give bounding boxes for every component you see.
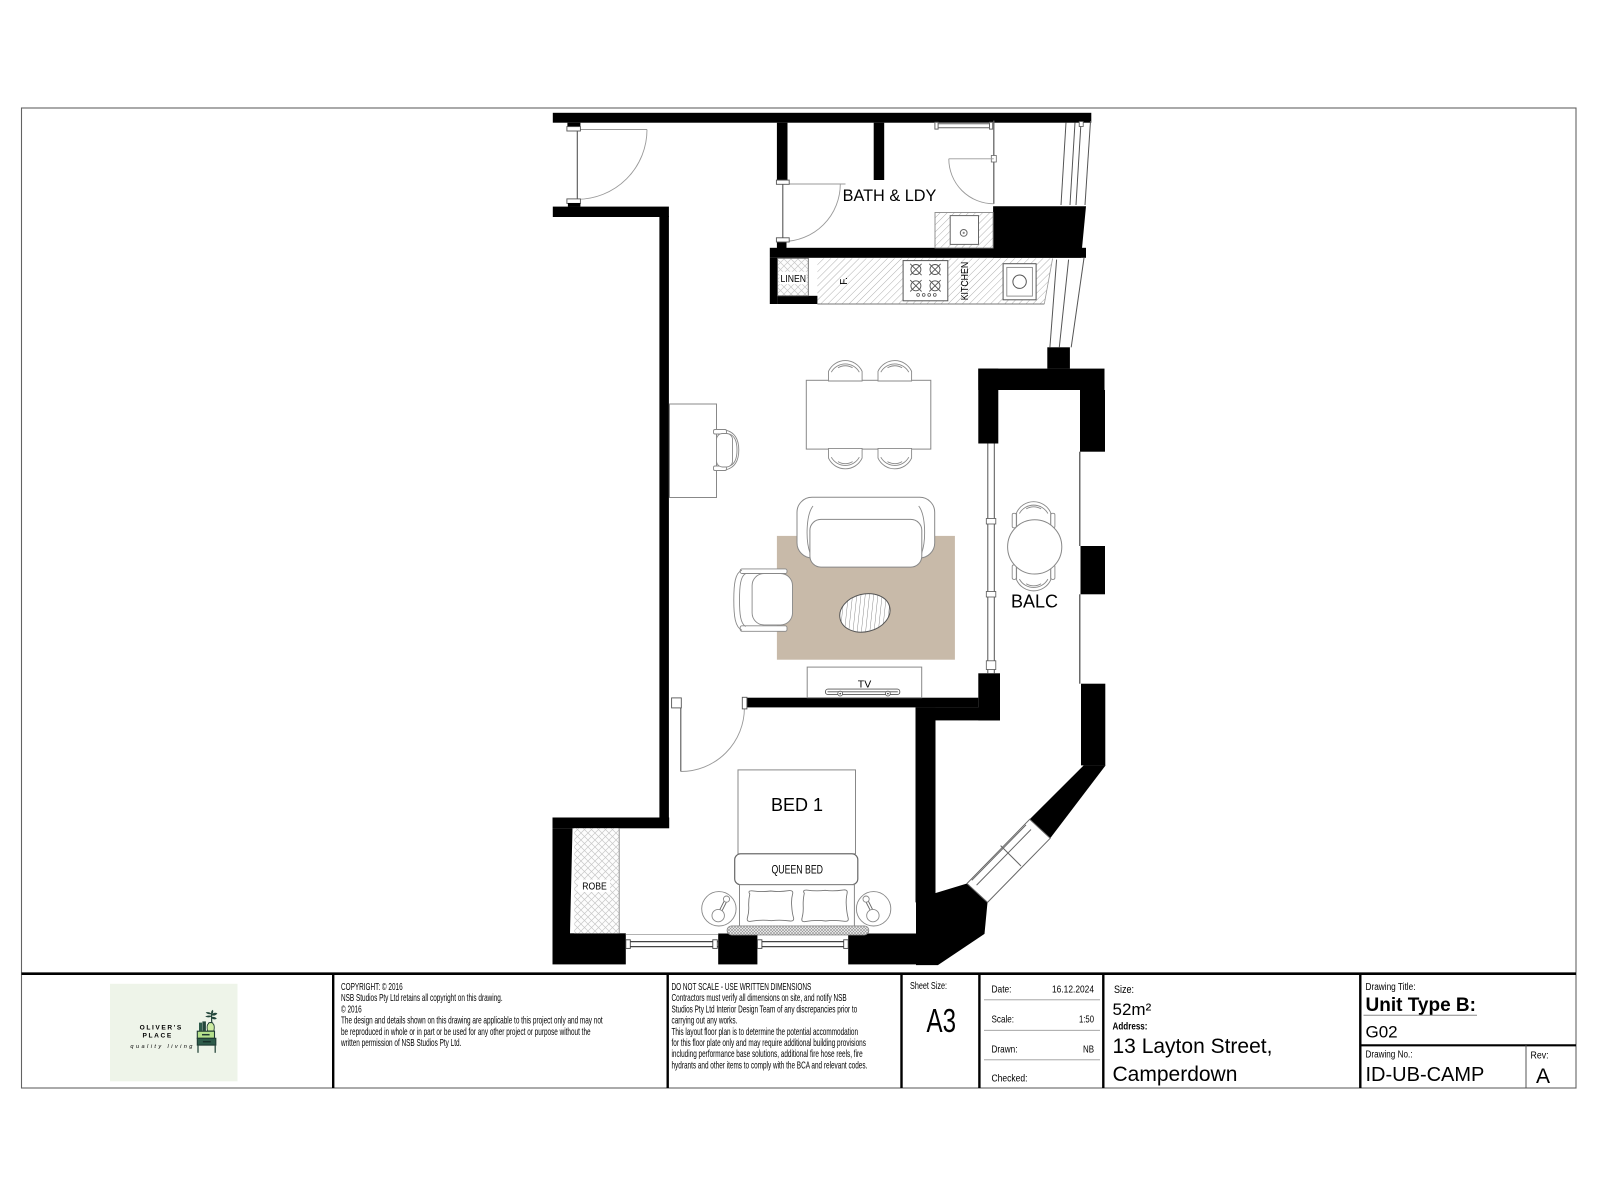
svg-text:Unit Type B:: Unit Type B:: [1366, 995, 1476, 1016]
svg-text:NSB Studios Pty Ltd retains al: NSB Studios Pty Ltd retains all copyrigh…: [341, 993, 503, 1004]
svg-text:QUEEN BED: QUEEN BED: [772, 865, 824, 877]
svg-text:written permission of NSB Stud: written permission of NSB Studios Pty Lt…: [340, 1038, 461, 1049]
svg-text:Address:: Address:: [1113, 1022, 1148, 1033]
svg-text:Camperdown: Camperdown: [1113, 1063, 1238, 1086]
svg-text:Contractors must verify all di: Contractors must verify all dimensions o…: [672, 993, 848, 1004]
svg-text:including performance base sol: including performance base solutions, ad…: [672, 1049, 863, 1060]
svg-text:NB: NB: [1083, 1044, 1094, 1056]
svg-text:Studios Pty Ltd Interior Desig: Studios Pty Ltd Interior Design Team of …: [672, 1004, 858, 1015]
svg-text:ROBE: ROBE: [582, 882, 607, 893]
svg-text:carrying out any works.: carrying out any works.: [672, 1015, 738, 1026]
svg-text:Scale:: Scale:: [992, 1014, 1015, 1026]
svg-text:Checked:: Checked:: [992, 1073, 1028, 1085]
svg-text:KITCHEN: KITCHEN: [959, 262, 971, 301]
svg-text:Sheet Size:: Sheet Size:: [910, 981, 947, 992]
svg-text:COPYRIGHT: © 2016: COPYRIGHT: © 2016: [341, 982, 403, 993]
svg-text:G02: G02: [1366, 1023, 1398, 1042]
svg-text:Rev:: Rev:: [1531, 1051, 1549, 1062]
svg-text:1:50: 1:50: [1079, 1014, 1094, 1026]
svg-text:16.12.2024: 16.12.2024: [1052, 984, 1094, 996]
svg-text:Drawing No.:: Drawing No.:: [1366, 1050, 1413, 1061]
svg-text:Date:: Date:: [992, 984, 1012, 996]
svg-text:DO NOT SCALE - USE WRITTEN DIM: DO NOT SCALE - USE WRITTEN DIMENSIONS: [672, 982, 812, 993]
svg-text:for this floor plate only and: for this floor plate only and may requir…: [672, 1038, 866, 1049]
svg-text:Drawn:: Drawn:: [992, 1044, 1018, 1056]
svg-text:TV: TV: [858, 679, 871, 691]
svg-text:© 2016: © 2016: [341, 1004, 362, 1015]
svg-text:Size:: Size:: [1114, 984, 1134, 996]
svg-text:13 Layton Street,: 13 Layton Street,: [1113, 1035, 1273, 1058]
svg-text:BED 1: BED 1: [771, 795, 823, 815]
svg-text:ID-UB-CAMP: ID-UB-CAMP: [1366, 1064, 1485, 1086]
svg-text:The design and details shown o: The design and details shown on this dra…: [341, 1015, 603, 1026]
svg-text:BATH & LDY: BATH & LDY: [843, 186, 937, 205]
svg-text:hydrants and other items to co: hydrants and other items to comply with …: [672, 1060, 868, 1071]
svg-text:A3: A3: [927, 1002, 957, 1039]
svg-text:F.: F.: [839, 277, 850, 285]
svg-text:BALC: BALC: [1011, 592, 1058, 612]
svg-text:A: A: [1536, 1065, 1550, 1088]
svg-text:This layout floor plan is to d: This layout floor plan is to determine t…: [672, 1027, 859, 1038]
svg-text:52m²: 52m²: [1113, 1000, 1152, 1019]
svg-text:LINEN: LINEN: [781, 274, 807, 285]
svg-text:be reproduced in whole or in p: be reproduced in whole or in part or be …: [341, 1027, 591, 1038]
svg-text:Drawing Title:: Drawing Title:: [1366, 982, 1416, 993]
